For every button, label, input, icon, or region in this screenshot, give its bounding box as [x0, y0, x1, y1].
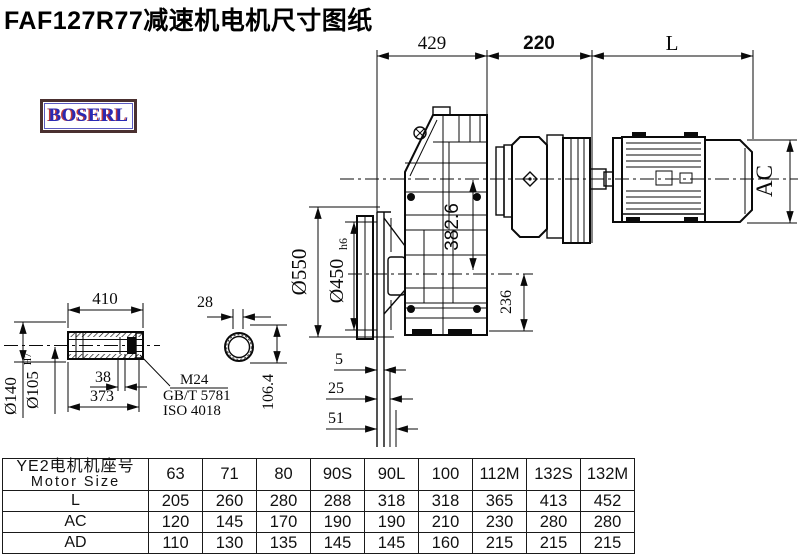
table-cell: 170	[257, 512, 311, 533]
dim-spigot: Ø450	[326, 259, 348, 303]
motor-fins	[626, 143, 701, 167]
table-cell: 190	[311, 512, 365, 533]
table-cell: 145	[365, 533, 419, 554]
table-row: AD 110 130 135 145 145 160 215 215 215	[3, 533, 635, 554]
row-label: L	[3, 491, 149, 512]
table-header-motor-size: YE2电机机座号 Motor Size	[3, 459, 149, 491]
table-cell: 190	[365, 512, 419, 533]
table-cell: 280	[257, 491, 311, 512]
table-cell: 205	[149, 491, 203, 512]
table-cell: 135	[257, 533, 311, 554]
table-cell: 230	[473, 512, 527, 533]
motor-assembly	[496, 132, 752, 243]
bolt-icon	[473, 305, 481, 313]
dim-bore-tol: H7	[23, 353, 34, 365]
col-header: 132M	[581, 459, 635, 491]
table-cell: 318	[419, 491, 473, 512]
table-cell: 215	[581, 533, 635, 554]
table-cell: 452	[581, 491, 635, 512]
dim-key-width: 28	[197, 294, 213, 311]
dim-center-dist: 382.6	[442, 203, 463, 251]
output-shaft-stub	[388, 257, 405, 295]
dim-base-height: 236	[498, 290, 515, 314]
dim-step-25: 25	[328, 380, 344, 397]
dim-flange-od: Ø550	[287, 249, 311, 296]
dim-373: 373	[90, 388, 114, 405]
table-cell: 280	[581, 512, 635, 533]
dim-429: 429	[418, 33, 447, 54]
col-header: 100	[419, 459, 473, 491]
dim-spigot-tol: h6	[336, 238, 350, 250]
dim-220: 220	[523, 33, 555, 54]
motor-size-table: YE2电机机座号 Motor Size 63 71 80 90S 90L 100…	[2, 458, 635, 554]
table-cell: 280	[527, 512, 581, 533]
table-cell: 160	[419, 533, 473, 554]
dim-shaft-length: 410	[92, 289, 118, 308]
col-header: 63	[149, 459, 203, 491]
table-cell: 145	[203, 512, 257, 533]
table-cell: 318	[365, 491, 419, 512]
table-row: L 205 260 280 288 318 318 365 413 452	[3, 491, 635, 512]
col-header: 90S	[311, 459, 365, 491]
table-header-cn: YE2电机机座号	[3, 459, 148, 475]
table-cell: 130	[203, 533, 257, 554]
dim-38: 38	[95, 369, 111, 386]
row-label: AC	[3, 512, 149, 533]
dim-ac: AC	[752, 165, 777, 197]
gearbox-foot	[448, 329, 472, 335]
table-cell: 288	[311, 491, 365, 512]
note-std-iso: ISO 4018	[163, 403, 221, 419]
dim-step-51: 51	[328, 410, 344, 427]
table-cell: 215	[473, 533, 527, 554]
table-cell: 210	[419, 512, 473, 533]
table-cell: 110	[149, 533, 203, 554]
flange-diameter-dims: Ø550 Ø450 h6	[287, 207, 394, 337]
dim-step-5: 5	[335, 351, 343, 368]
centerlines	[4, 179, 798, 346]
col-header: 71	[203, 459, 257, 491]
dim-bore: Ø105	[23, 371, 42, 409]
gearbox-foot	[412, 329, 432, 335]
ac-dimension: AC	[747, 140, 797, 223]
table-cell: 215	[527, 533, 581, 554]
dim-key-height: 106.4	[260, 374, 277, 410]
table-cell: 145	[311, 533, 365, 554]
bolt-icon	[407, 305, 415, 313]
table-cell: 260	[203, 491, 257, 512]
motor-flange	[613, 138, 622, 222]
table-row: AC 120 145 170 190 190 210 230 280 280	[3, 512, 635, 533]
table-cell: 120	[149, 512, 203, 533]
motor-fins	[626, 191, 701, 209]
bolt-icon	[473, 193, 481, 201]
note-std-gb: GB/T 5781	[163, 388, 231, 404]
col-header: 132S	[527, 459, 581, 491]
table-cell: 365	[473, 491, 527, 512]
note-thread: M24	[180, 372, 209, 388]
row-label: AD	[3, 533, 149, 554]
table-cell: 413	[527, 491, 581, 512]
bolt-icon	[407, 193, 415, 201]
page: FAF127R77减速机电机尺寸图纸 BOSERL 429 220 L	[0, 0, 800, 557]
col-header: 80	[257, 459, 311, 491]
dim-hub-od: Ø140	[1, 377, 20, 415]
flange-step-dims: 5 25 51	[326, 351, 418, 447]
table-header-en: Motor Size	[3, 475, 148, 490]
technical-drawing: 429 220 L	[0, 0, 800, 458]
col-header: 90L	[365, 459, 419, 491]
col-header: 112M	[473, 459, 527, 491]
dim-L: L	[666, 31, 679, 55]
